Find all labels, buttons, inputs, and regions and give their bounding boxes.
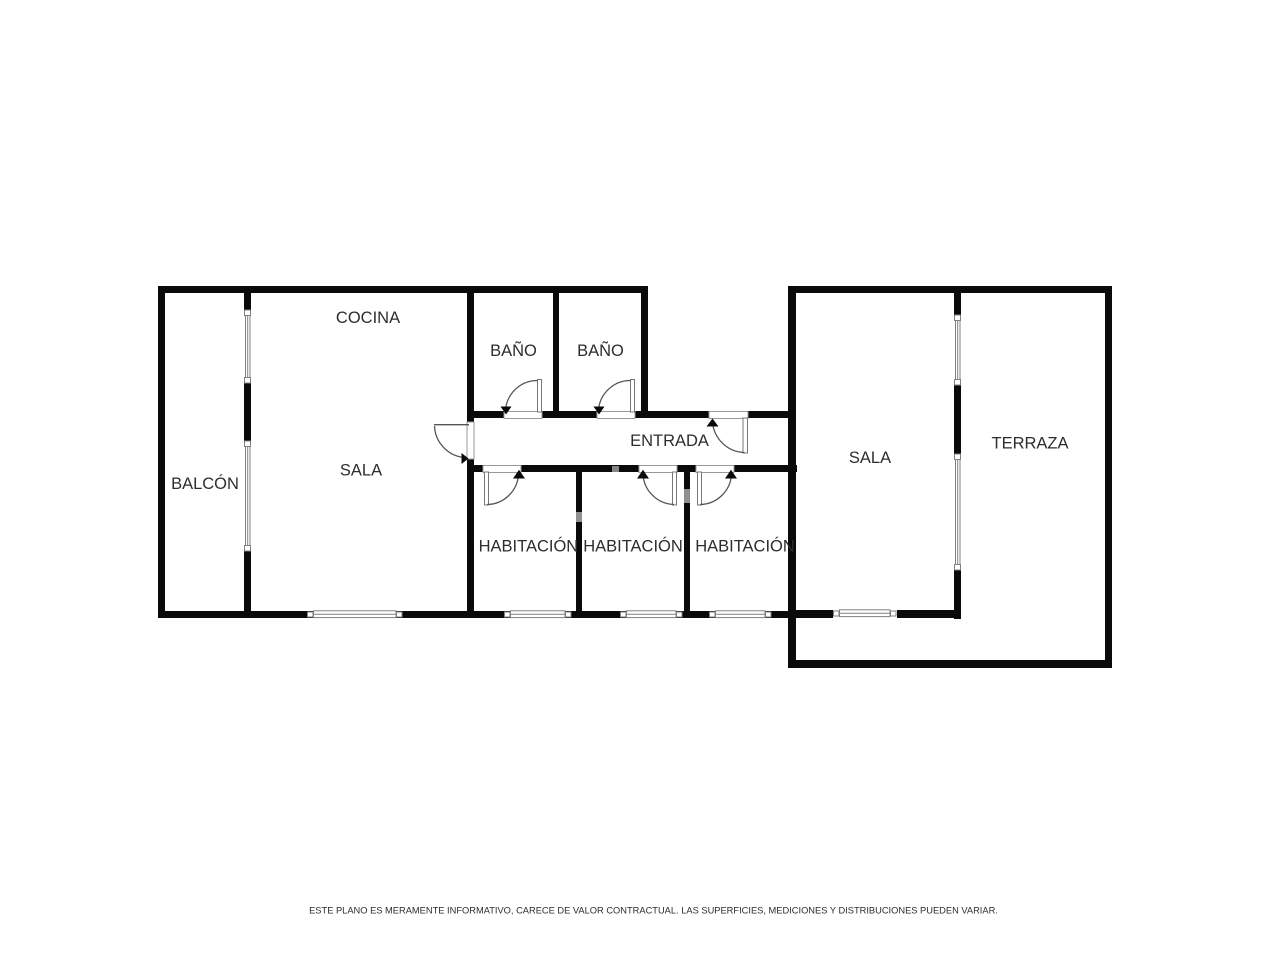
svg-text:HABITACIÓN: HABITACIÓN — [479, 537, 579, 556]
svg-text:BALCÓN: BALCÓN — [171, 474, 239, 493]
svg-text:ENTRADA: ENTRADA — [630, 432, 709, 450]
svg-text:COCINA: COCINA — [336, 309, 400, 327]
svg-text:HABITACIÓN: HABITACIÓN — [695, 537, 795, 556]
svg-text:SALA: SALA — [849, 449, 891, 467]
svg-text:HABITACIÓN: HABITACIÓN — [583, 537, 683, 556]
svg-text:TERRAZA: TERRAZA — [991, 435, 1068, 453]
svg-text:SALA: SALA — [340, 462, 382, 480]
svg-text:ESTE PLANO ES MERAMENTE INFORM: ESTE PLANO ES MERAMENTE INFORMATIVO, CAR… — [309, 906, 998, 916]
svg-text:BAÑO: BAÑO — [577, 340, 624, 360]
svg-text:BAÑO: BAÑO — [490, 340, 537, 360]
